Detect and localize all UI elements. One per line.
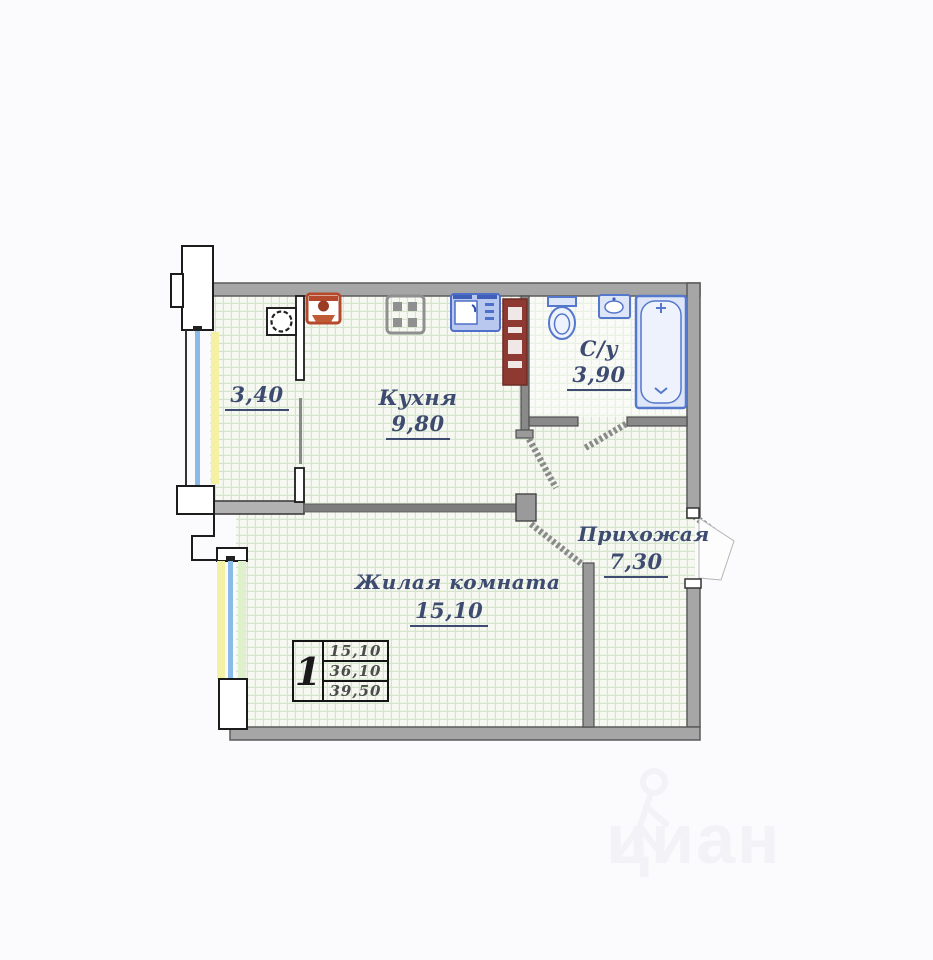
person-walking-icon	[606, 764, 682, 868]
red-appliance-icon	[307, 294, 340, 323]
living-room-name-label: Жилая комната	[355, 572, 543, 593]
rooms-count: 1	[294, 642, 324, 700]
hallway-living-wall	[583, 563, 594, 727]
living-window-glass	[228, 559, 233, 681]
entrance-jamb-top	[687, 508, 699, 518]
bathroom-bottom-wall-left	[529, 417, 578, 426]
living-window-post-bottom	[219, 679, 247, 729]
cabinet-column-icon	[503, 299, 527, 385]
living-area-value: 15,10	[324, 642, 387, 660]
hallway-name-label: Прихожая	[578, 524, 698, 545]
bathroom-name-label: С/у	[566, 338, 632, 360]
hallway-area-label: 7,30	[603, 551, 669, 573]
right-wall-upper	[687, 283, 700, 518]
pilaster-middle	[177, 486, 214, 514]
pilaster-top	[182, 246, 213, 330]
watermark: циан	[606, 764, 926, 874]
area-without-balcony-value: 36,10	[324, 660, 387, 680]
living-window-band-yellow	[217, 561, 225, 679]
right-wall-lower	[687, 580, 700, 727]
bathtub-icon	[636, 296, 686, 408]
floorplan-canvas: 3,40 Кухня 9,80 С/у 3,90 Прихожая 7,30 Ж…	[0, 0, 933, 960]
balcony-window-band-yellow	[211, 332, 219, 484]
kitchen-living-wall-thick	[200, 501, 304, 514]
living-window-band-green	[238, 561, 246, 679]
living-room-area-label: 15,10	[410, 600, 486, 622]
pilaster-top-bump	[171, 274, 183, 307]
toilet-icon	[548, 297, 576, 339]
kitchen-name-label: Кухня	[373, 387, 463, 409]
kitchen-area-label: 9,80	[385, 413, 451, 435]
apartment-info-table: 1 15,10 36,10 39,50	[292, 640, 389, 702]
balcony-window-glass	[195, 328, 200, 488]
bathroom-area-label: 3,90	[566, 364, 632, 386]
kitchen-living-wall-thin	[304, 504, 523, 512]
washing-machine-icon	[267, 308, 296, 335]
door-post	[516, 494, 536, 521]
washbasin-icon	[599, 295, 630, 318]
balcony-area-label: 3,40	[222, 384, 292, 406]
balcony-window-frame	[185, 330, 187, 487]
wall-foot	[516, 430, 533, 438]
entrance-jamb-bottom	[685, 579, 701, 588]
bathroom-bottom-wall-right	[627, 417, 687, 426]
kitchen-sink-icon	[451, 294, 500, 331]
total-area-value: 39,50	[324, 680, 387, 700]
bottom-wall	[230, 727, 700, 740]
